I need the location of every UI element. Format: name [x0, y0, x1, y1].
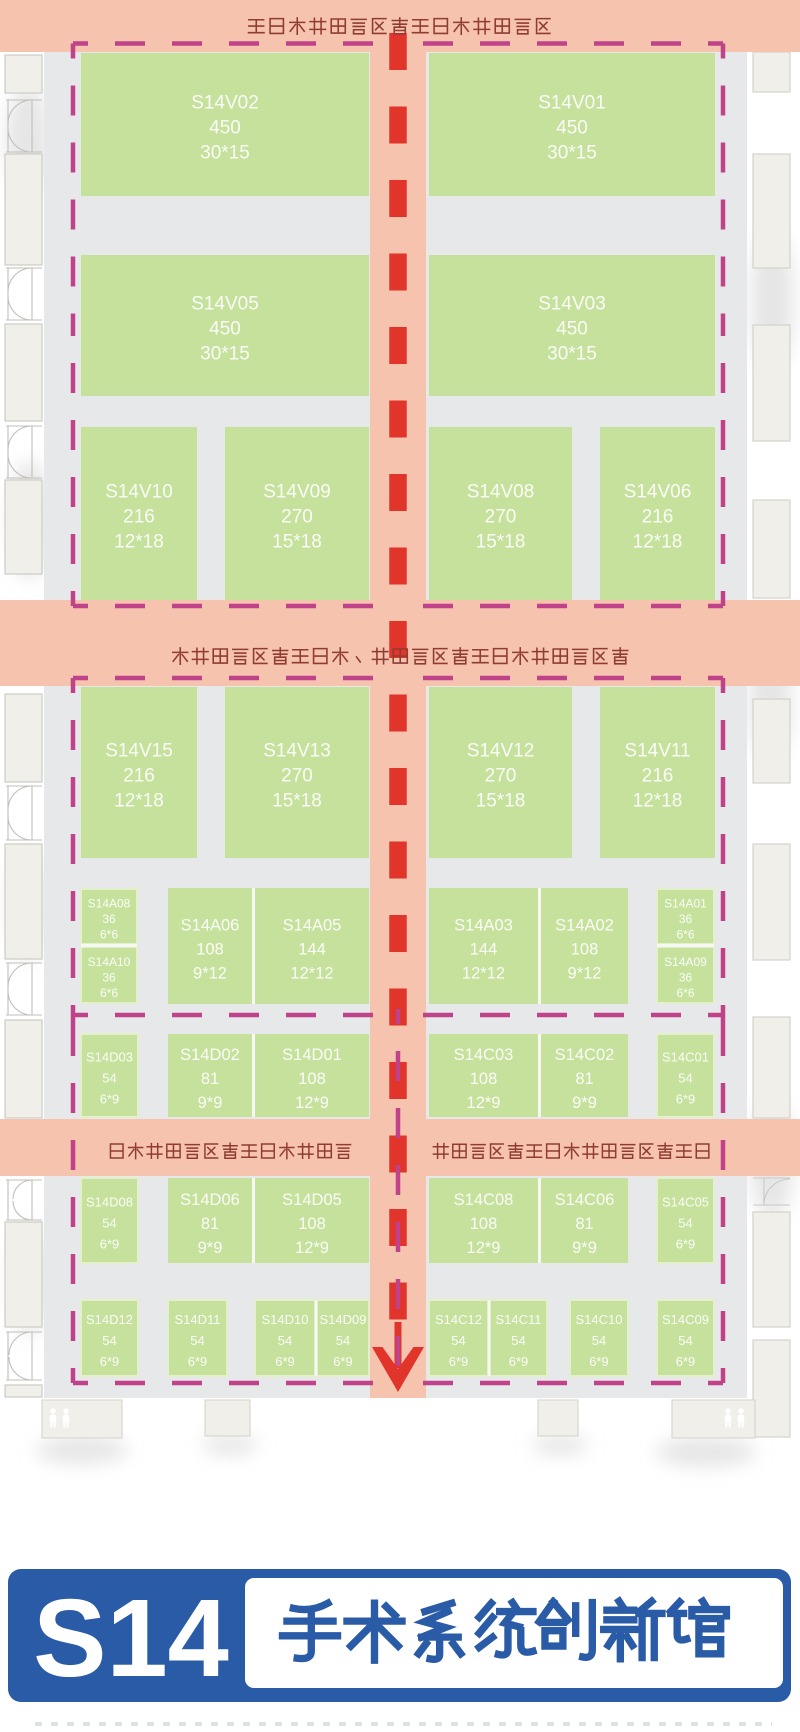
- svg-text:216: 216: [642, 507, 674, 528]
- svg-text:6*9: 6*9: [333, 1354, 353, 1369]
- svg-text:6*9: 6*9: [676, 1354, 696, 1369]
- svg-text:S14D05: S14D05: [282, 1191, 342, 1209]
- svg-text:108: 108: [298, 1070, 326, 1088]
- svg-text:15*18: 15*18: [272, 532, 322, 553]
- svg-text:15*18: 15*18: [476, 532, 526, 553]
- svg-text:216: 216: [123, 766, 155, 787]
- svg-text:6*9: 6*9: [188, 1354, 208, 1369]
- svg-text:12*12: 12*12: [462, 964, 505, 982]
- svg-text:450: 450: [209, 319, 241, 340]
- svg-text:S14A08: S14A08: [88, 897, 131, 911]
- svg-text:S14C08: S14C08: [454, 1191, 514, 1209]
- svg-text:S14V09: S14V09: [263, 482, 331, 503]
- svg-text:54: 54: [511, 1333, 525, 1348]
- svg-text:S14D06: S14D06: [180, 1191, 240, 1209]
- svg-text:12*18: 12*18: [633, 791, 683, 812]
- svg-text:6*9: 6*9: [275, 1354, 295, 1369]
- svg-text:S14D09: S14D09: [320, 1312, 367, 1327]
- svg-text:S14C01: S14C01: [662, 1050, 709, 1065]
- svg-text:S14C11: S14C11: [495, 1312, 541, 1327]
- svg-text:S14V08: S14V08: [467, 482, 535, 503]
- svg-text:36: 36: [102, 912, 116, 926]
- svg-text:S14A02: S14A02: [555, 916, 614, 934]
- svg-text:S14V05: S14V05: [191, 294, 259, 315]
- svg-text:S14C05: S14C05: [662, 1195, 709, 1210]
- svg-text:9*9: 9*9: [572, 1239, 597, 1257]
- svg-text:9*12: 9*12: [568, 964, 602, 982]
- svg-text:S14V15: S14V15: [105, 741, 173, 762]
- svg-text:S14A01: S14A01: [664, 897, 707, 911]
- svg-text:6*9: 6*9: [449, 1354, 469, 1369]
- svg-text:81: 81: [201, 1070, 219, 1088]
- svg-text:S14A03: S14A03: [454, 916, 513, 934]
- svg-text:54: 54: [678, 1071, 692, 1086]
- svg-text:6*9: 6*9: [509, 1354, 529, 1369]
- svg-text:108: 108: [298, 1215, 326, 1233]
- svg-text:144: 144: [298, 940, 326, 958]
- svg-text:6*9: 6*9: [676, 1237, 696, 1252]
- svg-text:S14C12: S14C12: [435, 1312, 482, 1327]
- svg-text:6*9: 6*9: [100, 1354, 120, 1369]
- svg-text:54: 54: [102, 1333, 116, 1348]
- svg-text:54: 54: [678, 1216, 692, 1231]
- svg-text:450: 450: [556, 319, 588, 340]
- svg-text:30*15: 30*15: [200, 143, 250, 164]
- svg-text:12*9: 12*9: [467, 1094, 501, 1112]
- svg-text:S14C09: S14C09: [662, 1312, 709, 1327]
- svg-text:144: 144: [470, 940, 498, 958]
- svg-text:S14V12: S14V12: [467, 741, 535, 762]
- svg-text:36: 36: [679, 971, 693, 985]
- svg-text:270: 270: [485, 766, 517, 787]
- svg-text:54: 54: [278, 1333, 292, 1348]
- svg-text:36: 36: [679, 912, 693, 926]
- svg-text:12*12: 12*12: [290, 964, 333, 982]
- svg-text:54: 54: [678, 1333, 692, 1348]
- svg-text:S14V11: S14V11: [624, 741, 690, 762]
- svg-text:450: 450: [556, 118, 588, 139]
- svg-text:270: 270: [281, 766, 313, 787]
- svg-text:108: 108: [571, 940, 599, 958]
- svg-text:9*9: 9*9: [198, 1094, 223, 1112]
- svg-text:12*9: 12*9: [467, 1239, 501, 1257]
- svg-text:54: 54: [190, 1333, 204, 1348]
- svg-text:S14D03: S14D03: [86, 1050, 133, 1065]
- svg-text:81: 81: [575, 1070, 593, 1088]
- svg-text:108: 108: [196, 940, 224, 958]
- svg-text:216: 216: [642, 766, 674, 787]
- svg-text:108: 108: [470, 1070, 498, 1088]
- svg-text:30*15: 30*15: [547, 143, 597, 164]
- svg-text:S14D02: S14D02: [180, 1046, 240, 1064]
- svg-text:6*9: 6*9: [676, 1092, 696, 1107]
- svg-text:270: 270: [281, 507, 313, 528]
- svg-text:S14V06: S14V06: [624, 482, 692, 503]
- svg-text:6*6: 6*6: [100, 928, 118, 942]
- svg-text:S14V13: S14V13: [263, 741, 331, 762]
- svg-text:36: 36: [102, 971, 116, 985]
- svg-text:6*6: 6*6: [676, 928, 694, 942]
- svg-text:30*15: 30*15: [547, 344, 597, 365]
- svg-text:S14D11: S14D11: [174, 1312, 220, 1327]
- svg-text:S14D01: S14D01: [282, 1046, 342, 1064]
- svg-text:S14A09: S14A09: [664, 955, 707, 969]
- svg-text:6*9: 6*9: [100, 1092, 120, 1107]
- svg-text:15*18: 15*18: [476, 791, 526, 812]
- svg-text:270: 270: [485, 507, 517, 528]
- svg-text:108: 108: [470, 1215, 498, 1233]
- svg-text:12*18: 12*18: [114, 532, 164, 553]
- svg-text:30*15: 30*15: [200, 344, 250, 365]
- svg-text:S14C06: S14C06: [555, 1191, 615, 1209]
- svg-text:S14D08: S14D08: [86, 1195, 133, 1210]
- svg-text:81: 81: [201, 1215, 219, 1233]
- svg-text:54: 54: [102, 1216, 116, 1231]
- svg-text:54: 54: [451, 1333, 465, 1348]
- svg-text:450: 450: [209, 118, 241, 139]
- svg-text:12*18: 12*18: [114, 791, 164, 812]
- svg-text:S14A05: S14A05: [283, 916, 342, 934]
- svg-text:9*9: 9*9: [572, 1094, 597, 1112]
- svg-text:S14V10: S14V10: [105, 482, 173, 503]
- svg-text:54: 54: [592, 1333, 606, 1348]
- svg-text:S14C03: S14C03: [454, 1046, 514, 1064]
- svg-text:S14V01: S14V01: [538, 93, 606, 114]
- svg-text:S14A10: S14A10: [88, 955, 131, 969]
- svg-text:54: 54: [102, 1071, 116, 1086]
- svg-text:S14D12: S14D12: [86, 1312, 133, 1327]
- svg-text:S14C02: S14C02: [555, 1046, 615, 1064]
- svg-text:S14V03: S14V03: [538, 294, 606, 315]
- svg-text:12*18: 12*18: [633, 532, 683, 553]
- svg-text:S14A06: S14A06: [181, 916, 240, 934]
- svg-text:12*9: 12*9: [295, 1094, 329, 1112]
- svg-text:S14: S14: [33, 1577, 229, 1700]
- svg-text:9*12: 9*12: [193, 964, 227, 982]
- svg-text:S14V02: S14V02: [191, 93, 259, 114]
- svg-text:54: 54: [336, 1333, 350, 1348]
- svg-text:6*6: 6*6: [100, 986, 118, 1000]
- svg-text:81: 81: [575, 1215, 593, 1233]
- svg-text:6*9: 6*9: [589, 1354, 609, 1369]
- svg-text:12*9: 12*9: [295, 1239, 329, 1257]
- svg-text:S14D10: S14D10: [262, 1312, 309, 1327]
- svg-text:9*9: 9*9: [198, 1239, 223, 1257]
- svg-text:S14C10: S14C10: [576, 1312, 623, 1327]
- svg-text:6*6: 6*6: [676, 986, 694, 1000]
- svg-text:15*18: 15*18: [272, 791, 322, 812]
- svg-text:216: 216: [123, 507, 155, 528]
- svg-text:6*9: 6*9: [100, 1237, 120, 1252]
